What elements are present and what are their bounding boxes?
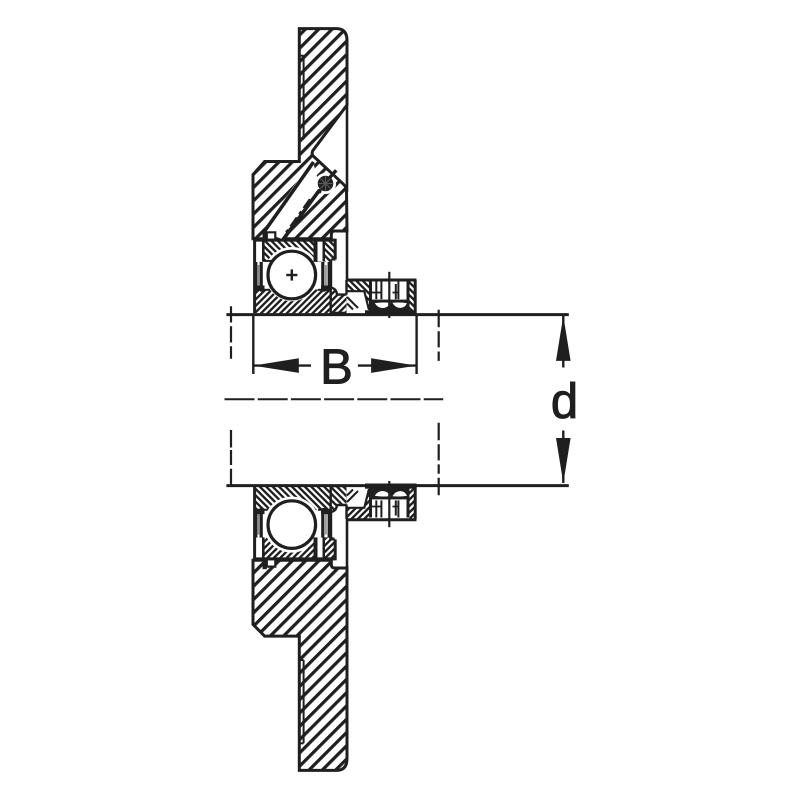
svg-text:d: d <box>551 375 578 429</box>
svg-text:B: B <box>320 341 353 395</box>
